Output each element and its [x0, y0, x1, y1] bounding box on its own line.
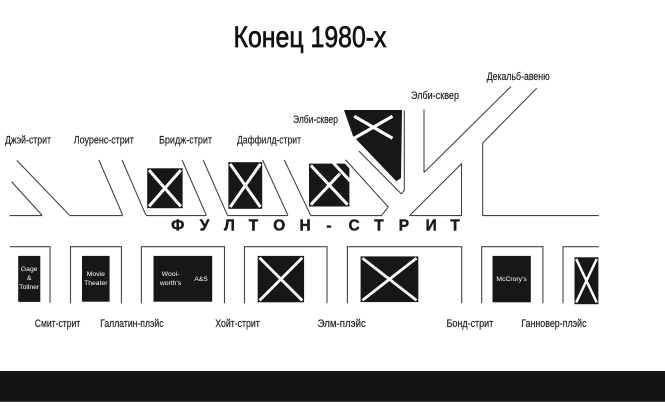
svg-text:Н: Н: [299, 218, 310, 235]
svg-text:Галлатин-плэйс: Галлатин-плэйс: [100, 318, 164, 330]
svg-text:Т: Т: [450, 218, 460, 235]
svg-text:Элм-плэйс: Элм-плэйс: [318, 318, 367, 330]
svg-text:Theater: Theater: [84, 280, 108, 287]
svg-text:&: &: [27, 275, 32, 282]
svg-text:С: С: [348, 218, 359, 235]
svg-text:Даффилд-стрит: Даффилд-стрит: [237, 135, 301, 147]
svg-text:Ганновер-плэйс: Ганновер-плэйс: [521, 318, 587, 330]
svg-text:Элби-сквер: Элби-сквер: [411, 90, 459, 102]
svg-text:worth's: worth's: [159, 280, 182, 287]
svg-text:Хойт-стрит: Хойт-стрит: [215, 318, 260, 330]
svg-text:Конец 1980-х: Конец 1980-х: [234, 21, 387, 54]
svg-text:Элби-сквер: Элби-сквер: [293, 114, 338, 126]
svg-text:-: -: [326, 218, 331, 235]
svg-text:У: У: [200, 218, 210, 235]
svg-text:Т: Т: [374, 218, 384, 235]
svg-text:Лоуренс-стрит: Лоуренс-стрит: [74, 135, 134, 147]
svg-text:Бонд-стрит: Бонд-стрит: [447, 318, 494, 330]
svg-text:Gage: Gage: [21, 266, 38, 273]
svg-text:Бридж-стрит: Бридж-стрит: [159, 135, 212, 147]
svg-text:Л: Л: [224, 218, 235, 235]
svg-text:Tollner: Tollner: [19, 284, 40, 291]
svg-text:A&S: A&S: [194, 276, 208, 283]
svg-text:Декальб-авеню: Декальб-авеню: [487, 71, 550, 83]
svg-text:Смит-стрит: Смит-стрит: [35, 318, 81, 330]
svg-text:Ф: Ф: [171, 218, 184, 235]
svg-text:И: И: [426, 218, 437, 235]
svg-text:Джэй-стрит: Джэй-стрит: [5, 135, 51, 147]
svg-text:McCrory's: McCrory's: [496, 276, 527, 283]
svg-text:О: О: [273, 218, 285, 235]
svg-text:Movie: Movie: [87, 271, 105, 278]
svg-text:Р: Р: [399, 218, 409, 235]
svg-text:Wool-: Wool-: [162, 271, 180, 278]
svg-text:Т: Т: [249, 218, 259, 235]
